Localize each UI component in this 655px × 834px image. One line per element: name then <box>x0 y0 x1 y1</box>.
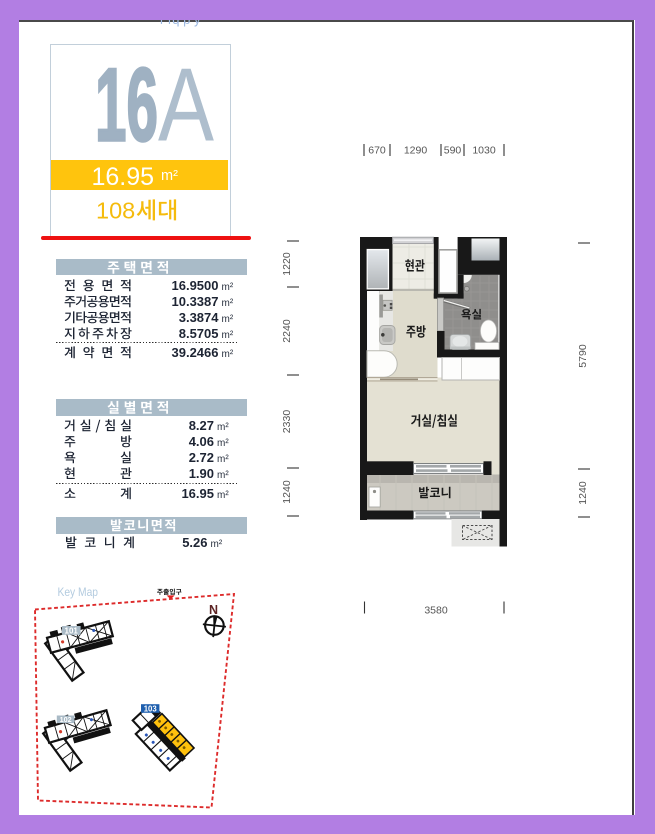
svg-text:102: 102 <box>60 715 72 724</box>
svg-text:m²: m² <box>211 539 223 550</box>
svg-text:m²: m² <box>222 330 234 341</box>
svg-text:16.9500: 16.9500 <box>172 278 219 293</box>
svg-text:m²: m² <box>161 168 178 184</box>
svg-text:5790: 5790 <box>577 344 589 368</box>
svg-text:m²: m² <box>217 454 229 465</box>
svg-text:1240: 1240 <box>281 480 293 504</box>
svg-text:8.5705: 8.5705 <box>179 326 219 341</box>
svg-text:1030: 1030 <box>472 145 496 157</box>
svg-text:1.90: 1.90 <box>189 466 214 481</box>
svg-text:8.27: 8.27 <box>189 418 214 433</box>
svg-text:2330: 2330 <box>281 410 293 434</box>
svg-text:3580: 3580 <box>424 605 448 617</box>
svg-text:2.72: 2.72 <box>189 450 214 465</box>
svg-text:101: 101 <box>65 626 79 635</box>
svg-text:16.95: 16.95 <box>181 486 214 501</box>
svg-text:m²: m² <box>217 470 229 481</box>
svg-text:N: N <box>209 603 218 617</box>
svg-text:103: 103 <box>144 704 158 713</box>
svg-text:1290: 1290 <box>404 145 428 157</box>
svg-text:1240: 1240 <box>577 481 589 505</box>
svg-text:m²: m² <box>222 314 234 325</box>
svg-text:108: 108 <box>96 198 135 224</box>
svg-text:m²: m² <box>222 298 234 309</box>
svg-text:3.3874: 3.3874 <box>179 310 220 325</box>
svg-text:4.06: 4.06 <box>189 434 214 449</box>
svg-text:1220: 1220 <box>281 252 293 276</box>
svg-text:m²: m² <box>217 490 229 501</box>
svg-text:A: A <box>158 48 215 145</box>
svg-text:m²: m² <box>217 438 229 449</box>
svg-text:m²: m² <box>222 282 234 293</box>
svg-text:16: 16 <box>95 48 158 145</box>
svg-text:2240: 2240 <box>281 319 293 343</box>
svg-text:590: 590 <box>444 145 462 157</box>
svg-text:m²: m² <box>217 422 229 433</box>
svg-text:670: 670 <box>368 145 386 157</box>
svg-text:Key Map: Key Map <box>58 585 99 599</box>
svg-text:10.3387: 10.3387 <box>172 294 219 309</box>
svg-text:5.26: 5.26 <box>182 535 207 550</box>
svg-text:39.2466: 39.2466 <box>172 345 219 360</box>
svg-text:16.95: 16.95 <box>92 163 155 190</box>
svg-text:m²: m² <box>222 349 234 360</box>
